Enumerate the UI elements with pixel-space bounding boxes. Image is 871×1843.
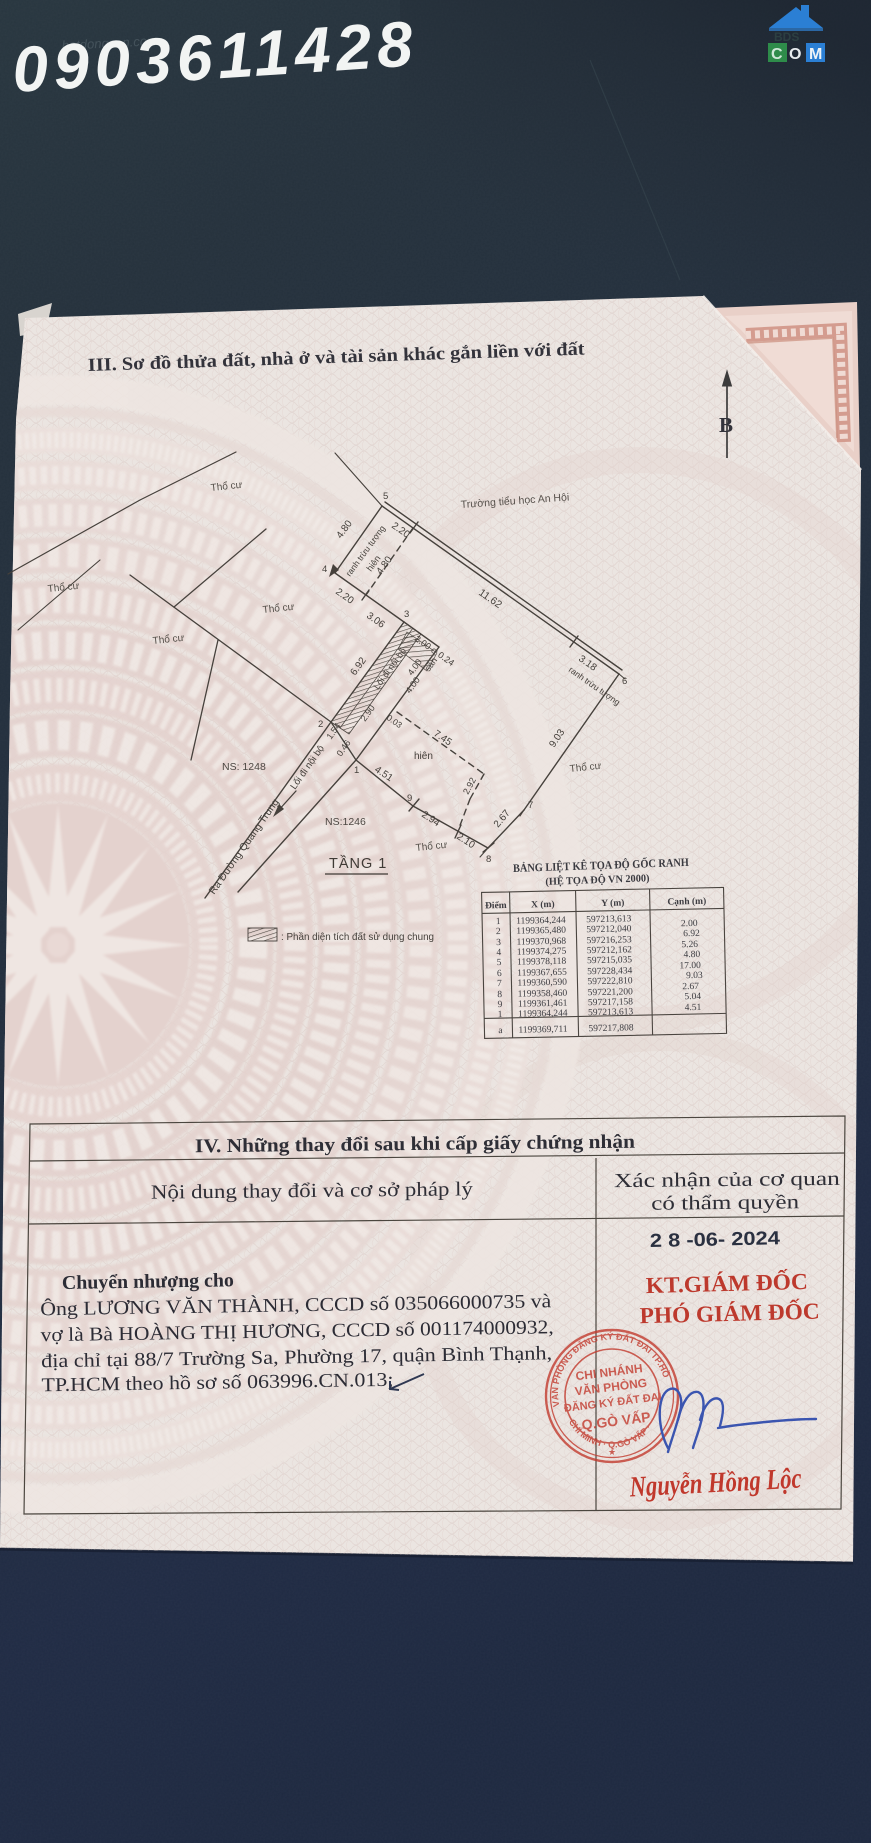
svg-text:: Phần diện tích đất sử dụng c: : Phần diện tích đất sử dụng chung — [281, 931, 434, 943]
svg-text:597222,810: 597222,810 — [587, 976, 633, 987]
svg-text:X (m): X (m) — [531, 899, 555, 910]
svg-text:hiên: hiên — [414, 751, 433, 762]
svg-text:1: 1 — [354, 765, 359, 776]
svg-text:2: 2 — [318, 719, 323, 730]
svg-text:1199364,244: 1199364,244 — [518, 1009, 568, 1020]
svg-text:7: 7 — [528, 800, 533, 811]
svg-text:17.00: 17.00 — [679, 961, 701, 971]
svg-text:1: 1 — [496, 917, 501, 927]
svg-text:4: 4 — [496, 948, 501, 958]
svg-text:4: 4 — [322, 564, 327, 575]
svg-text:có thẩm quyền: có thẩm quyền — [651, 1191, 799, 1215]
svg-text:597212,040: 597212,040 — [586, 924, 632, 935]
svg-text:597215,035: 597215,035 — [587, 955, 633, 966]
svg-text:1199369,711: 1199369,711 — [518, 1025, 568, 1036]
svg-text:C: C — [771, 46, 783, 63]
svg-text:2 8 -06- 2024: 2 8 -06- 2024 — [650, 1228, 781, 1252]
svg-text:1199378,118: 1199378,118 — [517, 957, 567, 968]
svg-text:9: 9 — [407, 793, 412, 804]
svg-text:5.26: 5.26 — [681, 940, 698, 950]
svg-text:Chuyển nhượng cho: Chuyển nhượng cho — [62, 1270, 234, 1294]
svg-text:7: 7 — [497, 979, 502, 989]
svg-text:1199365,480: 1199365,480 — [516, 926, 566, 937]
svg-text:8: 8 — [486, 854, 491, 865]
svg-text:5: 5 — [383, 491, 388, 502]
svg-text:Cạnh (m): Cạnh (m) — [667, 896, 706, 908]
svg-text:597217,808: 597217,808 — [588, 1023, 634, 1034]
svg-text:1199360,590: 1199360,590 — [517, 978, 567, 989]
svg-text:O: O — [789, 46, 801, 63]
svg-text:Xác nhận của cơ quan: Xác nhận của cơ quan — [614, 1168, 840, 1192]
svg-text:NS:1246: NS:1246 — [325, 816, 366, 828]
svg-text:2.00: 2.00 — [681, 919, 698, 929]
svg-text:9: 9 — [497, 1000, 502, 1010]
svg-text:2.67: 2.67 — [682, 982, 699, 992]
svg-text:9.03: 9.03 — [686, 971, 703, 981]
svg-text:BDS: BDS — [774, 30, 799, 44]
svg-text:Điểm: Điểm — [485, 900, 507, 911]
svg-text:5: 5 — [497, 958, 502, 968]
svg-text:6: 6 — [497, 969, 502, 979]
svg-text:3: 3 — [496, 938, 501, 948]
svg-text:597213,613: 597213,613 — [588, 1007, 634, 1018]
svg-text:Y (m): Y (m) — [601, 897, 624, 908]
svg-text:6: 6 — [622, 676, 627, 687]
svg-text:PHÓ GIÁM ĐỐC: PHÓ GIÁM ĐỐC — [639, 1298, 820, 1329]
svg-text:Nội dung thay đổi và cơ sở phá: Nội dung thay đổi và cơ sở pháp lý — [151, 1178, 473, 1203]
svg-text:NS: 1248: NS: 1248 — [222, 761, 266, 773]
svg-text:3: 3 — [404, 609, 409, 620]
svg-text:8: 8 — [497, 990, 502, 1000]
svg-text:5.04: 5.04 — [684, 992, 701, 1002]
svg-text:★: ★ — [608, 1447, 616, 1457]
svg-text:6.92: 6.92 — [683, 929, 700, 939]
svg-text:M: M — [809, 46, 822, 63]
svg-text:KT.GIÁM ĐỐC: KT.GIÁM ĐỐC — [646, 1268, 809, 1298]
svg-text:TẦNG 1: TẦNG 1 — [329, 855, 387, 872]
svg-text:1: 1 — [498, 1010, 503, 1020]
svg-text:B: B — [719, 413, 733, 437]
svg-text:4.51: 4.51 — [685, 1003, 702, 1013]
svg-text:4.80: 4.80 — [684, 950, 701, 960]
svg-text:2: 2 — [496, 927, 501, 937]
